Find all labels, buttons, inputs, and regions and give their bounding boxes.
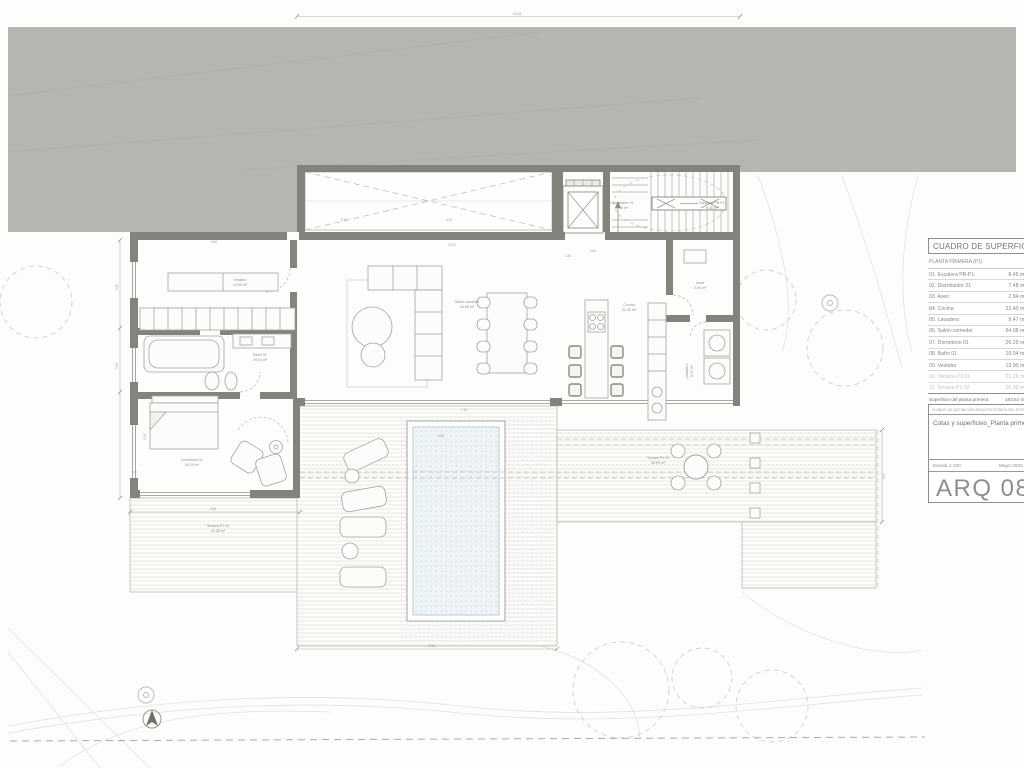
table-row: 08. Baño 0119.04 m²	[928, 349, 1024, 360]
date-label: Mayo 2022	[999, 464, 1023, 469]
aseo-sink	[684, 250, 706, 263]
svg-text:Aseo: Aseo	[696, 281, 704, 285]
drawing-sheet: Vestidor 13.90 m² Baño 01 19.04 m² Dormi…	[0, 0, 1024, 768]
svg-text:Distribuidor 01: Distribuidor 01	[610, 201, 633, 205]
svg-text:Escalera PB-P1: Escalera PB-P1	[699, 201, 724, 205]
surface-table: CUADRO DE SUPERFICIES PLANTA PRIMERA (P1…	[928, 238, 1024, 428]
svg-text:8.45 m²: 8.45 m²	[706, 206, 719, 210]
north-arrow-icon	[143, 710, 161, 728]
svg-text:4.95: 4.95	[210, 507, 216, 511]
svg-text:Dormitorio 01: Dormitorio 01	[181, 458, 203, 462]
title-block-header: PLANOS DE DEFINICIÓN ARQUITECTÓNICA DEL …	[929, 405, 1024, 415]
table-row: 01. Escalera PB-P18.45 m²	[928, 269, 1024, 280]
table-row: 09. Vestidor13.90 m²	[928, 360, 1024, 371]
svg-text:2.15: 2.15	[143, 434, 147, 440]
svg-text:15.37: 15.37	[448, 243, 456, 247]
svg-text:3.67: 3.67	[882, 473, 886, 479]
title-block: PLANOS DE DEFINICIÓN ARQUITECTÓNICA DEL …	[928, 404, 1024, 503]
pool	[407, 421, 505, 621]
svg-text:2.94 m²: 2.94 m²	[694, 286, 707, 290]
svg-text:13.90 m²: 13.90 m²	[233, 283, 248, 287]
bed	[150, 396, 218, 449]
svg-text:Lavadero: Lavadero	[685, 364, 689, 379]
svg-text:7.10: 7.10	[461, 408, 467, 412]
svg-text:24.43: 24.43	[513, 12, 521, 16]
vanity-sinks	[233, 334, 291, 348]
kitchen-island	[585, 300, 608, 398]
bathtub	[144, 336, 224, 372]
sheet-title: Cotas y superficies_Planta primera	[929, 415, 1024, 432]
table-row: 03. Aseo2.94 m²	[928, 292, 1024, 303]
svg-text:9.19: 9.19	[446, 218, 452, 222]
svg-text:7.48 m²: 7.48 m²	[616, 206, 629, 210]
plot-boundary-line	[10, 737, 925, 741]
svg-text:4.60: 4.60	[211, 240, 217, 244]
table-row: 06. Salón-comedor64.08 m²	[928, 326, 1024, 337]
svg-text:26.29 m²: 26.29 m²	[185, 463, 200, 467]
table-row: 04. Cocina22.40 m²	[928, 303, 1024, 314]
elevator	[563, 180, 603, 233]
surface-table-title: CUADRO DE SUPERFICIES	[928, 238, 1024, 254]
svg-text:6.98: 6.98	[429, 644, 435, 648]
toilet	[205, 372, 219, 390]
table-row: 10. Terraza P1 0121.26 m²	[928, 371, 1024, 382]
svg-text:Terraza P1 02: Terraza P1 02	[647, 456, 669, 460]
svg-text:22.40 m²: 22.40 m²	[622, 308, 637, 312]
svg-text:4.11: 4.11	[666, 167, 672, 171]
svg-text:21.26 m²: 21.26 m²	[211, 529, 226, 533]
svg-text:5.18: 5.18	[341, 218, 347, 222]
scale-label: Escala 1:100	[933, 464, 961, 469]
svg-text:2.50: 2.50	[590, 249, 596, 253]
svg-text:8.00: 8.00	[438, 434, 444, 438]
svg-text:26.99 m²: 26.99 m²	[651, 461, 666, 465]
svg-text:Baño 01: Baño 01	[253, 353, 266, 357]
sheet-code: ARQ 08	[929, 471, 1024, 502]
table-row: 02. Distribuidor 017.48 m²	[928, 280, 1024, 291]
bidet	[225, 372, 237, 390]
svg-text:Vestidor: Vestidor	[234, 278, 248, 282]
coffee-table-large	[352, 307, 392, 347]
svg-text:9.47 m²: 9.47 m²	[690, 364, 694, 377]
kitchen-counter	[648, 303, 666, 420]
svg-text:64.08 m²: 64.08 m²	[460, 305, 475, 309]
svg-text:3.30: 3.30	[115, 363, 119, 369]
svg-text:1.84: 1.84	[565, 254, 571, 258]
floor-plan-drawing: Vestidor 13.90 m² Baño 01 19.04 m² Dormi…	[0, 0, 1024, 768]
table-row: 05. Lavadero9.47 m²	[928, 315, 1024, 326]
svg-text:2.30: 2.30	[115, 284, 119, 290]
svg-text:19.04 m²: 19.04 m²	[253, 358, 268, 362]
svg-text:Salón comedor: Salón comedor	[455, 300, 480, 304]
svg-text:Terraza P1 01: Terraza P1 01	[207, 524, 229, 528]
svg-text:Cocina: Cocina	[623, 303, 634, 307]
table-row: 07. Dormitorio 0126.29 m²	[928, 337, 1024, 348]
coffee-table-small	[361, 343, 385, 367]
surface-table-subtitle: PLANTA PRIMERA (P1)	[928, 257, 1024, 269]
